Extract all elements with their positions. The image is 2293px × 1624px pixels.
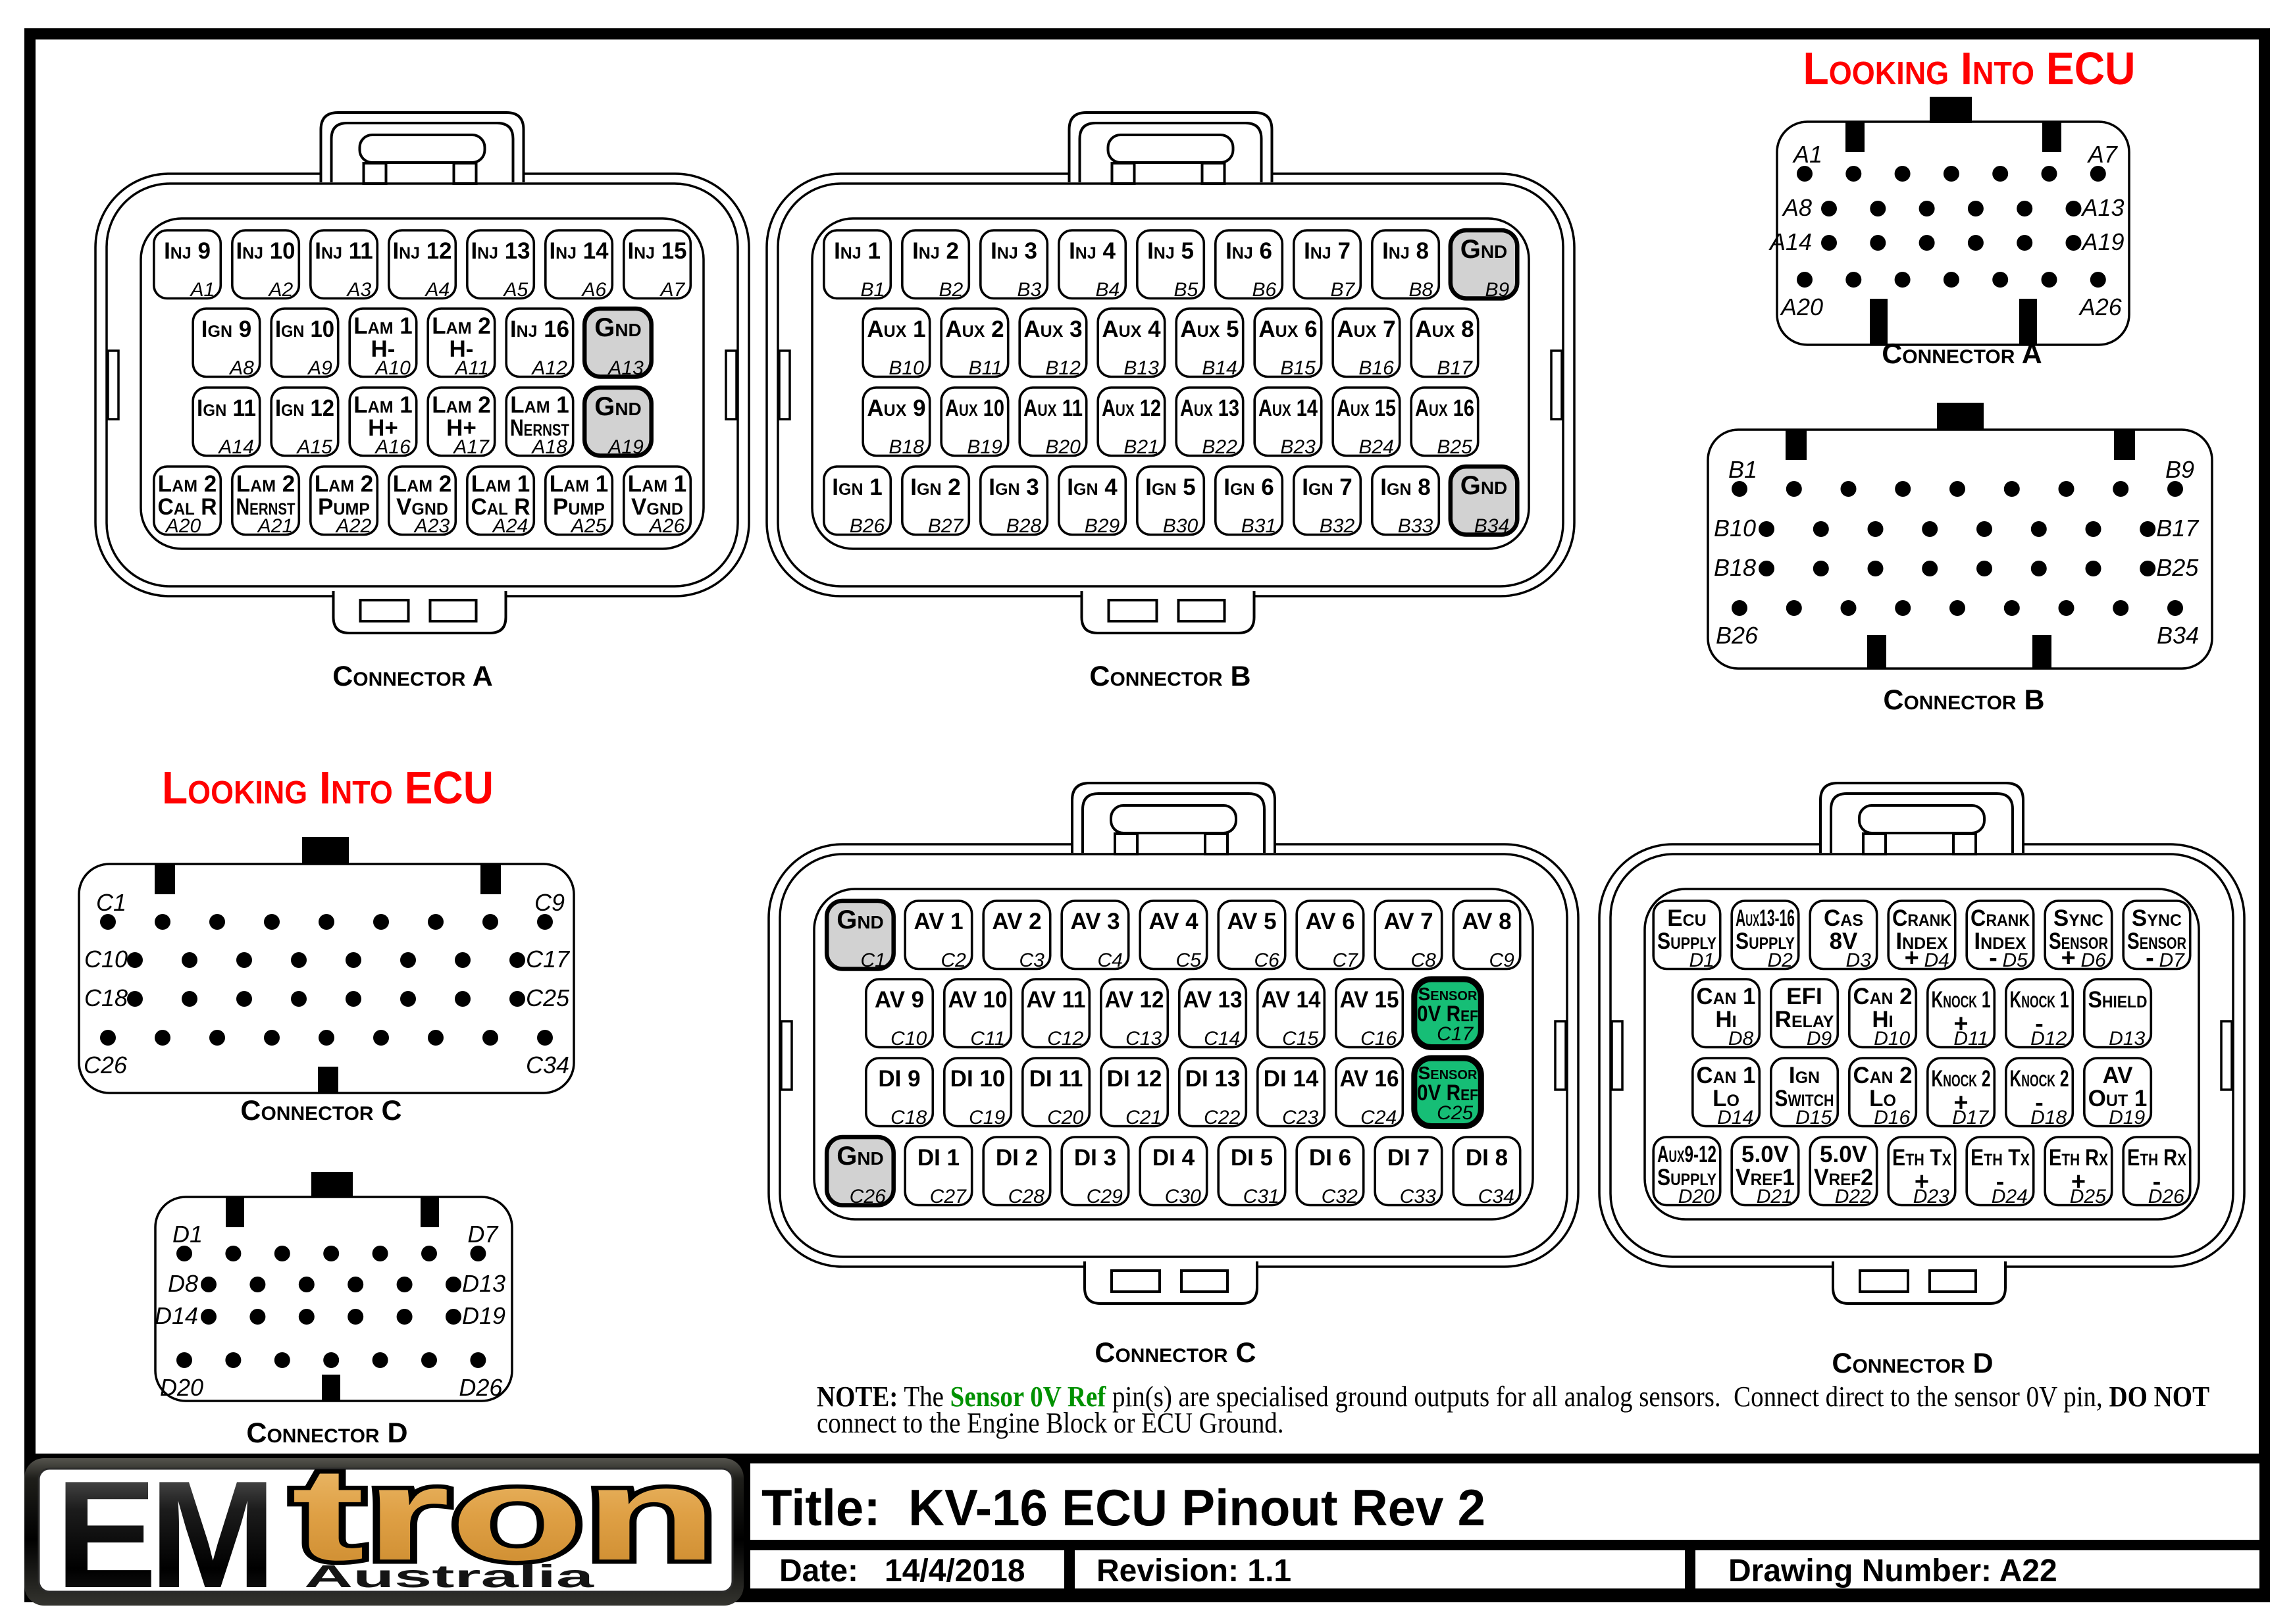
svg-text:DI 11: DI 11 bbox=[1029, 1066, 1083, 1092]
svg-text:Gnd: Gnd bbox=[837, 1142, 884, 1171]
svg-text:5.0V: 5.0V bbox=[1741, 1142, 1790, 1167]
svg-text:A4: A4 bbox=[424, 279, 450, 301]
svg-text:Inj 13: Inj 13 bbox=[471, 238, 530, 264]
svg-text:C27: C27 bbox=[930, 1186, 967, 1207]
svg-text:Connector B: Connector B bbox=[1883, 684, 2044, 716]
svg-text:Aux 13: Aux 13 bbox=[1180, 395, 1239, 421]
svg-text:B29: B29 bbox=[1085, 515, 1120, 537]
svg-text:A14: A14 bbox=[1768, 228, 1812, 255]
svg-text:DI 1: DI 1 bbox=[917, 1145, 960, 1171]
svg-text:B22: B22 bbox=[1202, 436, 1237, 458]
svg-text:D4: D4 bbox=[1924, 950, 1949, 971]
svg-text:B23: B23 bbox=[1280, 436, 1316, 458]
svg-text:D19: D19 bbox=[2109, 1107, 2145, 1129]
svg-text:Sync: Sync bbox=[2132, 905, 2182, 931]
svg-text:Inj 5: Inj 5 bbox=[1147, 238, 1194, 264]
svg-text:EM: EM bbox=[55, 1450, 269, 1620]
svg-text:Aux 15: Aux 15 bbox=[1337, 395, 1396, 421]
svg-text:Ign 7: Ign 7 bbox=[1302, 474, 1352, 500]
svg-text:B34: B34 bbox=[2157, 622, 2199, 649]
svg-text:Aux 3: Aux 3 bbox=[1023, 317, 1082, 342]
svg-text:A19: A19 bbox=[2081, 228, 2125, 255]
svg-text:B1: B1 bbox=[860, 279, 885, 301]
svg-text:Inj 6: Inj 6 bbox=[1225, 238, 1272, 264]
svg-text:C20: C20 bbox=[1047, 1107, 1083, 1129]
svg-text:B17: B17 bbox=[2156, 515, 2200, 542]
svg-text:B28: B28 bbox=[1006, 515, 1042, 537]
svg-text:B8: B8 bbox=[1408, 279, 1433, 301]
svg-text:D14: D14 bbox=[155, 1302, 198, 1329]
svg-text:B18: B18 bbox=[1714, 554, 1756, 581]
svg-text:C17: C17 bbox=[1437, 1023, 1474, 1045]
svg-text:B11: B11 bbox=[969, 357, 1002, 379]
svg-text:Can 2: Can 2 bbox=[1853, 984, 1913, 1009]
svg-text:Connector A: Connector A bbox=[332, 661, 493, 692]
svg-text:C12: C12 bbox=[1047, 1028, 1083, 1050]
svg-text:D26: D26 bbox=[2148, 1186, 2184, 1207]
svg-text:DI 13: DI 13 bbox=[1185, 1066, 1241, 1092]
svg-text:DI 7: DI 7 bbox=[1387, 1145, 1430, 1171]
svg-text:C30: C30 bbox=[1165, 1186, 1201, 1207]
svg-text:A7: A7 bbox=[659, 279, 685, 301]
svg-text:Aux 2: Aux 2 bbox=[945, 317, 1004, 342]
svg-text:A1: A1 bbox=[1792, 141, 1822, 168]
svg-text:Ign 9: Ign 9 bbox=[201, 317, 251, 342]
svg-text:Crank: Crank bbox=[1892, 905, 1951, 931]
svg-text:Connector C: Connector C bbox=[240, 1095, 401, 1127]
svg-text:A15: A15 bbox=[296, 436, 332, 458]
svg-text:AV 13: AV 13 bbox=[1183, 987, 1243, 1013]
svg-text:B7: B7 bbox=[1330, 279, 1355, 301]
svg-text:Connector D: Connector D bbox=[1832, 1348, 1993, 1379]
svg-text:AV 11: AV 11 bbox=[1027, 987, 1086, 1013]
svg-text:B26: B26 bbox=[1716, 622, 1759, 649]
svg-text:Gnd: Gnd bbox=[1460, 471, 1508, 500]
svg-text:Ign 3: Ign 3 bbox=[989, 474, 1039, 500]
svg-text:B15: B15 bbox=[1280, 357, 1316, 379]
svg-text:Looking Into ECU: Looking Into ECU bbox=[1803, 43, 2136, 94]
svg-text:DI 10: DI 10 bbox=[950, 1066, 1006, 1092]
svg-text:Ign 12: Ign 12 bbox=[275, 395, 334, 421]
svg-text:Ign 4: Ign 4 bbox=[1067, 474, 1118, 500]
svg-text:D12: D12 bbox=[2030, 1028, 2067, 1050]
svg-text:Aux 10: Aux 10 bbox=[945, 395, 1004, 421]
svg-text:Inj 15: Inj 15 bbox=[628, 238, 687, 264]
svg-text:DI 5: DI 5 bbox=[1231, 1145, 1273, 1171]
svg-text:C33: C33 bbox=[1400, 1186, 1436, 1207]
svg-text:Aux9-12: Aux9-12 bbox=[1657, 1142, 1716, 1167]
svg-text:D19: D19 bbox=[462, 1302, 505, 1329]
svg-text:C13: C13 bbox=[1125, 1028, 1162, 1050]
svg-text:Lam 2: Lam 2 bbox=[432, 313, 490, 339]
svg-text:Inj 10: Inj 10 bbox=[236, 238, 296, 264]
svg-text:C4: C4 bbox=[1097, 950, 1122, 971]
svg-text:D1: D1 bbox=[172, 1221, 203, 1248]
svg-text:B14: B14 bbox=[1202, 357, 1237, 379]
svg-text:D8: D8 bbox=[1728, 1028, 1754, 1050]
svg-text:A11: A11 bbox=[454, 357, 489, 379]
svg-text:D10: D10 bbox=[1874, 1028, 1910, 1050]
svg-text:B2: B2 bbox=[939, 279, 963, 301]
svg-text:D3: D3 bbox=[1845, 950, 1871, 971]
svg-text:A12: A12 bbox=[530, 357, 567, 379]
svg-text:C22: C22 bbox=[1204, 1107, 1240, 1129]
svg-text:B27: B27 bbox=[928, 515, 964, 537]
svg-text:AV 1: AV 1 bbox=[914, 909, 963, 934]
svg-text:B25: B25 bbox=[2156, 554, 2199, 581]
svg-text:C17: C17 bbox=[526, 946, 571, 973]
svg-text:Knock 1: Knock 1 bbox=[1932, 987, 1991, 1013]
svg-text:Eth Tx: Eth Tx bbox=[1971, 1145, 2030, 1171]
svg-text:DI 14: DI 14 bbox=[1264, 1066, 1319, 1092]
svg-text:DI 12: DI 12 bbox=[1107, 1066, 1162, 1092]
svg-text:C29: C29 bbox=[1087, 1186, 1123, 1207]
svg-text:D18: D18 bbox=[2030, 1107, 2067, 1129]
svg-text:DI 4: DI 4 bbox=[1152, 1145, 1195, 1171]
svg-text:Ign 5: Ign 5 bbox=[1145, 474, 1195, 500]
svg-text:Lam 2: Lam 2 bbox=[393, 471, 451, 497]
svg-text:D15: D15 bbox=[1795, 1107, 1832, 1129]
svg-text:C16: C16 bbox=[1360, 1028, 1397, 1050]
svg-text:C2: C2 bbox=[940, 950, 966, 971]
svg-text:AV 12: AV 12 bbox=[1105, 987, 1164, 1013]
svg-text:A20: A20 bbox=[165, 515, 201, 537]
svg-text:C28: C28 bbox=[1008, 1186, 1044, 1207]
svg-text:DI 3: DI 3 bbox=[1074, 1145, 1116, 1171]
svg-text:Aux 9: Aux 9 bbox=[867, 395, 925, 421]
svg-text:DI 6: DI 6 bbox=[1309, 1145, 1351, 1171]
svg-text:Lam 1: Lam 1 bbox=[353, 392, 412, 418]
svg-text:C34: C34 bbox=[526, 1052, 569, 1078]
svg-text:A17: A17 bbox=[452, 436, 490, 458]
svg-text:Revision: 1.1: Revision: 1.1 bbox=[1096, 1554, 1291, 1588]
svg-text:B10: B10 bbox=[889, 357, 924, 379]
svg-text:A19: A19 bbox=[607, 436, 644, 458]
svg-text:AV 3: AV 3 bbox=[1070, 909, 1120, 934]
svg-text:D7: D7 bbox=[467, 1221, 499, 1248]
svg-text:Aux 14: Aux 14 bbox=[1258, 395, 1318, 421]
svg-text:Lam 2: Lam 2 bbox=[432, 392, 490, 418]
svg-text:C8: C8 bbox=[1410, 950, 1436, 971]
svg-text:D6: D6 bbox=[2080, 950, 2106, 971]
svg-text:Lam 2: Lam 2 bbox=[236, 471, 295, 497]
svg-text:Title: KV-16 ECU Pinout Rev 2: Title: KV-16 ECU Pinout Rev 2 bbox=[761, 1479, 1485, 1536]
svg-text:A13: A13 bbox=[2081, 194, 2125, 221]
svg-text:B24: B24 bbox=[1358, 436, 1393, 458]
svg-text:C3: C3 bbox=[1019, 950, 1044, 971]
svg-text:C23: C23 bbox=[1282, 1107, 1318, 1129]
svg-text:+: + bbox=[2061, 944, 2076, 972]
svg-text:Lam 1: Lam 1 bbox=[628, 471, 686, 497]
svg-text:AV 10: AV 10 bbox=[948, 987, 1008, 1013]
svg-text:C31: C31 bbox=[1243, 1186, 1279, 1207]
svg-text:Inj 2: Inj 2 bbox=[912, 238, 959, 264]
svg-text:B34: B34 bbox=[1474, 515, 1509, 537]
svg-text:Aux 5: Aux 5 bbox=[1180, 317, 1239, 342]
svg-text:DI 8: DI 8 bbox=[1466, 1145, 1508, 1171]
svg-text:D16: D16 bbox=[1874, 1107, 1910, 1129]
svg-text:Can 1: Can 1 bbox=[1697, 984, 1756, 1009]
svg-text:B9: B9 bbox=[1485, 279, 1509, 301]
svg-text:Inj 3: Inj 3 bbox=[991, 238, 1037, 264]
svg-text:Aux 7: Aux 7 bbox=[1337, 317, 1395, 342]
svg-text:B20: B20 bbox=[1045, 436, 1081, 458]
svg-text:AV 6: AV 6 bbox=[1305, 909, 1354, 934]
svg-text:D9: D9 bbox=[1807, 1028, 1832, 1050]
svg-text:A2: A2 bbox=[267, 279, 293, 301]
svg-text:AV 5: AV 5 bbox=[1227, 909, 1276, 934]
svg-text:D22: D22 bbox=[1835, 1186, 1871, 1207]
svg-text:C14: C14 bbox=[1204, 1028, 1240, 1050]
svg-text:Lam 1: Lam 1 bbox=[471, 471, 530, 497]
svg-text:Aux 4: Aux 4 bbox=[1102, 317, 1161, 342]
svg-text:D17: D17 bbox=[1952, 1107, 1989, 1129]
svg-text:A18: A18 bbox=[530, 436, 567, 458]
svg-text:C34: C34 bbox=[1478, 1186, 1514, 1207]
svg-text:D20: D20 bbox=[160, 1374, 203, 1401]
svg-text:AV: AV bbox=[2102, 1063, 2133, 1088]
svg-text:B4: B4 bbox=[1095, 279, 1120, 301]
svg-text:Ign 1: Ign 1 bbox=[832, 474, 882, 500]
svg-text:D11: D11 bbox=[1953, 1028, 1988, 1050]
svg-text:D8: D8 bbox=[168, 1270, 198, 1297]
svg-text:Inj 4: Inj 4 bbox=[1069, 238, 1116, 264]
svg-text:C9: C9 bbox=[534, 889, 565, 916]
svg-text:B17: B17 bbox=[1437, 357, 1473, 379]
svg-text:A22: A22 bbox=[335, 515, 372, 537]
svg-text:Inj 8: Inj 8 bbox=[1382, 238, 1429, 264]
svg-text:Inj 9: Inj 9 bbox=[164, 238, 211, 264]
svg-text:D25: D25 bbox=[2070, 1186, 2106, 1207]
svg-text:C26: C26 bbox=[84, 1052, 128, 1078]
svg-text:B5: B5 bbox=[1173, 279, 1198, 301]
svg-text:A21: A21 bbox=[257, 515, 293, 537]
svg-text:D23: D23 bbox=[1913, 1186, 1949, 1207]
svg-text:C6: C6 bbox=[1254, 950, 1279, 971]
svg-text:C1: C1 bbox=[860, 950, 885, 971]
svg-text:Lam 2: Lam 2 bbox=[158, 471, 217, 497]
svg-text:B30: B30 bbox=[1163, 515, 1198, 537]
svg-text:Ign 10: Ign 10 bbox=[275, 317, 334, 342]
svg-text:C9: C9 bbox=[1489, 950, 1514, 971]
svg-text:C32: C32 bbox=[1322, 1186, 1358, 1207]
svg-text:AV 4: AV 4 bbox=[1148, 909, 1198, 934]
svg-text:Inj 1: Inj 1 bbox=[834, 238, 881, 264]
svg-text:C21: C21 bbox=[1125, 1107, 1162, 1129]
svg-text:B19: B19 bbox=[967, 436, 1002, 458]
svg-text:B6: B6 bbox=[1252, 279, 1276, 301]
svg-text:B33: B33 bbox=[1398, 515, 1433, 537]
svg-text:C25: C25 bbox=[526, 984, 570, 1011]
svg-text:A5: A5 bbox=[502, 279, 528, 301]
svg-text:D21: D21 bbox=[1757, 1186, 1793, 1207]
svg-text:Shield: Shield bbox=[2088, 987, 2148, 1013]
svg-text:Connector C: Connector C bbox=[1095, 1337, 1256, 1369]
svg-text:A25: A25 bbox=[570, 515, 607, 537]
svg-text:A6: A6 bbox=[580, 279, 606, 301]
svg-text:B16: B16 bbox=[1358, 357, 1394, 379]
svg-text:A8: A8 bbox=[1782, 194, 1812, 221]
svg-text:Knock 2: Knock 2 bbox=[2010, 1066, 2069, 1092]
svg-text:C15: C15 bbox=[1282, 1028, 1318, 1050]
svg-text:Ecu: Ecu bbox=[1667, 905, 1706, 931]
svg-text:C18: C18 bbox=[890, 1107, 927, 1129]
svg-text:D14: D14 bbox=[1717, 1107, 1753, 1129]
svg-text:D5: D5 bbox=[2002, 950, 2028, 971]
svg-text:Eth Tx: Eth Tx bbox=[1892, 1145, 1951, 1171]
svg-text:A23: A23 bbox=[413, 515, 450, 537]
svg-text:+: + bbox=[1905, 944, 1919, 972]
svg-text:D13: D13 bbox=[2109, 1028, 2145, 1050]
svg-text:-: - bbox=[1989, 944, 1997, 972]
svg-text:Ign 6: Ign 6 bbox=[1224, 474, 1274, 500]
svg-text:Lam 1: Lam 1 bbox=[510, 392, 569, 418]
svg-text:B18: B18 bbox=[889, 436, 924, 458]
svg-text:Ign 2: Ign 2 bbox=[910, 474, 960, 500]
svg-text:AV 9: AV 9 bbox=[875, 987, 924, 1013]
svg-text:B3: B3 bbox=[1017, 279, 1041, 301]
svg-text:Gnd: Gnd bbox=[837, 905, 884, 934]
svg-text:A26: A26 bbox=[2078, 293, 2123, 320]
svg-text:B21: B21 bbox=[1123, 436, 1158, 458]
svg-text:Ign: Ign bbox=[1789, 1063, 1820, 1088]
svg-text:Connector A: Connector A bbox=[1882, 338, 2042, 370]
svg-text:Ign 8: Ign 8 bbox=[1380, 474, 1430, 500]
svg-text:A26: A26 bbox=[648, 515, 685, 537]
svg-text:Lam 1: Lam 1 bbox=[353, 313, 412, 339]
svg-text:C25: C25 bbox=[1437, 1102, 1473, 1124]
svg-text:Connector B: Connector B bbox=[1089, 661, 1250, 692]
svg-text:D2: D2 bbox=[1767, 950, 1793, 971]
svg-text:D1: D1 bbox=[1689, 950, 1714, 971]
svg-text:A13: A13 bbox=[607, 357, 644, 379]
svg-text:AV 15: AV 15 bbox=[1340, 987, 1399, 1013]
svg-text:DI 9: DI 9 bbox=[878, 1066, 920, 1092]
svg-text:Lam 1: Lam 1 bbox=[550, 471, 608, 497]
svg-text:Lam 2: Lam 2 bbox=[315, 471, 373, 497]
svg-text:C24: C24 bbox=[1360, 1107, 1397, 1129]
svg-text:A24: A24 bbox=[492, 515, 528, 537]
svg-text:Aux 16: Aux 16 bbox=[1415, 395, 1474, 421]
svg-text:B26: B26 bbox=[850, 515, 885, 537]
svg-text:Drawing Number: A22: Drawing Number: A22 bbox=[1728, 1554, 2057, 1588]
svg-text:A10: A10 bbox=[374, 357, 411, 379]
svg-text:AV 14: AV 14 bbox=[1262, 987, 1321, 1013]
svg-text:-: - bbox=[2146, 944, 2154, 972]
svg-text:C18: C18 bbox=[84, 984, 128, 1011]
svg-text:Date: 14/4/2018: Date: 14/4/2018 bbox=[779, 1554, 1025, 1588]
svg-text:Inj 16: Inj 16 bbox=[510, 317, 569, 342]
svg-text:Inj 14: Inj 14 bbox=[550, 238, 609, 264]
svg-text:D24: D24 bbox=[1992, 1186, 2028, 1207]
svg-text:C1: C1 bbox=[96, 889, 126, 916]
svg-text:C19: C19 bbox=[969, 1107, 1005, 1129]
svg-text:D20: D20 bbox=[1678, 1186, 1714, 1207]
svg-text:C10: C10 bbox=[84, 946, 128, 973]
svg-text:B9: B9 bbox=[2165, 456, 2194, 483]
svg-text:Inj 11: Inj 11 bbox=[315, 238, 373, 264]
svg-text:Eth Rx: Eth Rx bbox=[2127, 1145, 2186, 1171]
svg-text:A8: A8 bbox=[228, 357, 254, 379]
svg-text:Aux 11: Aux 11 bbox=[1023, 395, 1083, 421]
svg-text:Can 2: Can 2 bbox=[1853, 1063, 1913, 1088]
svg-text:C11: C11 bbox=[970, 1028, 1005, 1050]
svg-text:AV 8: AV 8 bbox=[1462, 909, 1511, 934]
svg-text:Knock 2: Knock 2 bbox=[1932, 1066, 1991, 1092]
svg-text:Sync: Sync bbox=[2053, 905, 2103, 931]
svg-text:Looking Into ECU: Looking Into ECU bbox=[162, 762, 494, 813]
svg-text:B12: B12 bbox=[1045, 357, 1081, 379]
svg-text:A14: A14 bbox=[217, 436, 253, 458]
svg-text:D13: D13 bbox=[462, 1270, 505, 1297]
svg-text:Gnd: Gnd bbox=[594, 392, 642, 421]
svg-text:B13: B13 bbox=[1123, 357, 1159, 379]
svg-text:Gnd: Gnd bbox=[594, 313, 642, 342]
svg-text:Cas: Cas bbox=[1824, 905, 1863, 931]
svg-text:Knock 1: Knock 1 bbox=[2010, 987, 2069, 1013]
svg-text:C5: C5 bbox=[1175, 950, 1201, 971]
svg-text:AV 7: AV 7 bbox=[1383, 909, 1433, 934]
svg-text:Australia: Australia bbox=[304, 1560, 594, 1594]
svg-text:Can 1: Can 1 bbox=[1697, 1063, 1756, 1088]
svg-text:C26: C26 bbox=[850, 1186, 886, 1207]
svg-text:Inj 7: Inj 7 bbox=[1304, 238, 1351, 264]
svg-text:Ign 11: Ign 11 bbox=[197, 395, 256, 421]
svg-text:DI 2: DI 2 bbox=[996, 1145, 1038, 1171]
svg-text:B25: B25 bbox=[1437, 436, 1472, 458]
svg-text:AV 16: AV 16 bbox=[1340, 1066, 1399, 1092]
svg-text:B10: B10 bbox=[1714, 515, 1756, 542]
svg-text:C10: C10 bbox=[890, 1028, 927, 1050]
svg-text:B1: B1 bbox=[1728, 456, 1757, 483]
svg-text:A1: A1 bbox=[189, 279, 215, 301]
svg-text:Aux 12: Aux 12 bbox=[1102, 395, 1161, 421]
svg-text:Inj 12: Inj 12 bbox=[393, 238, 452, 264]
svg-text:A16: A16 bbox=[374, 436, 411, 458]
svg-text:Aux 6: Aux 6 bbox=[1258, 317, 1317, 342]
svg-text:A7: A7 bbox=[2087, 141, 2119, 168]
svg-text:EFI: EFI bbox=[1786, 984, 1822, 1009]
svg-text:AV 2: AV 2 bbox=[992, 909, 1041, 934]
svg-text:A9: A9 bbox=[307, 357, 332, 379]
svg-text:Crank: Crank bbox=[1971, 905, 2030, 931]
svg-text:B32: B32 bbox=[1320, 515, 1355, 537]
svg-text:Aux13-16: Aux13-16 bbox=[1736, 905, 1795, 931]
svg-text:D26: D26 bbox=[459, 1374, 503, 1401]
svg-text:C7: C7 bbox=[1332, 950, 1358, 971]
svg-text:A20: A20 bbox=[1780, 293, 1823, 320]
svg-text:Aux 8: Aux 8 bbox=[1415, 317, 1474, 342]
svg-text:Aux 1: Aux 1 bbox=[867, 317, 925, 342]
svg-text:B31: B31 bbox=[1241, 515, 1276, 537]
svg-text:D7: D7 bbox=[2159, 950, 2185, 971]
svg-text:Gnd: Gnd bbox=[1460, 235, 1508, 264]
svg-text:5.0V: 5.0V bbox=[1820, 1142, 1868, 1167]
svg-text:Eth Rx: Eth Rx bbox=[2049, 1145, 2108, 1171]
svg-text:A3: A3 bbox=[346, 279, 371, 301]
